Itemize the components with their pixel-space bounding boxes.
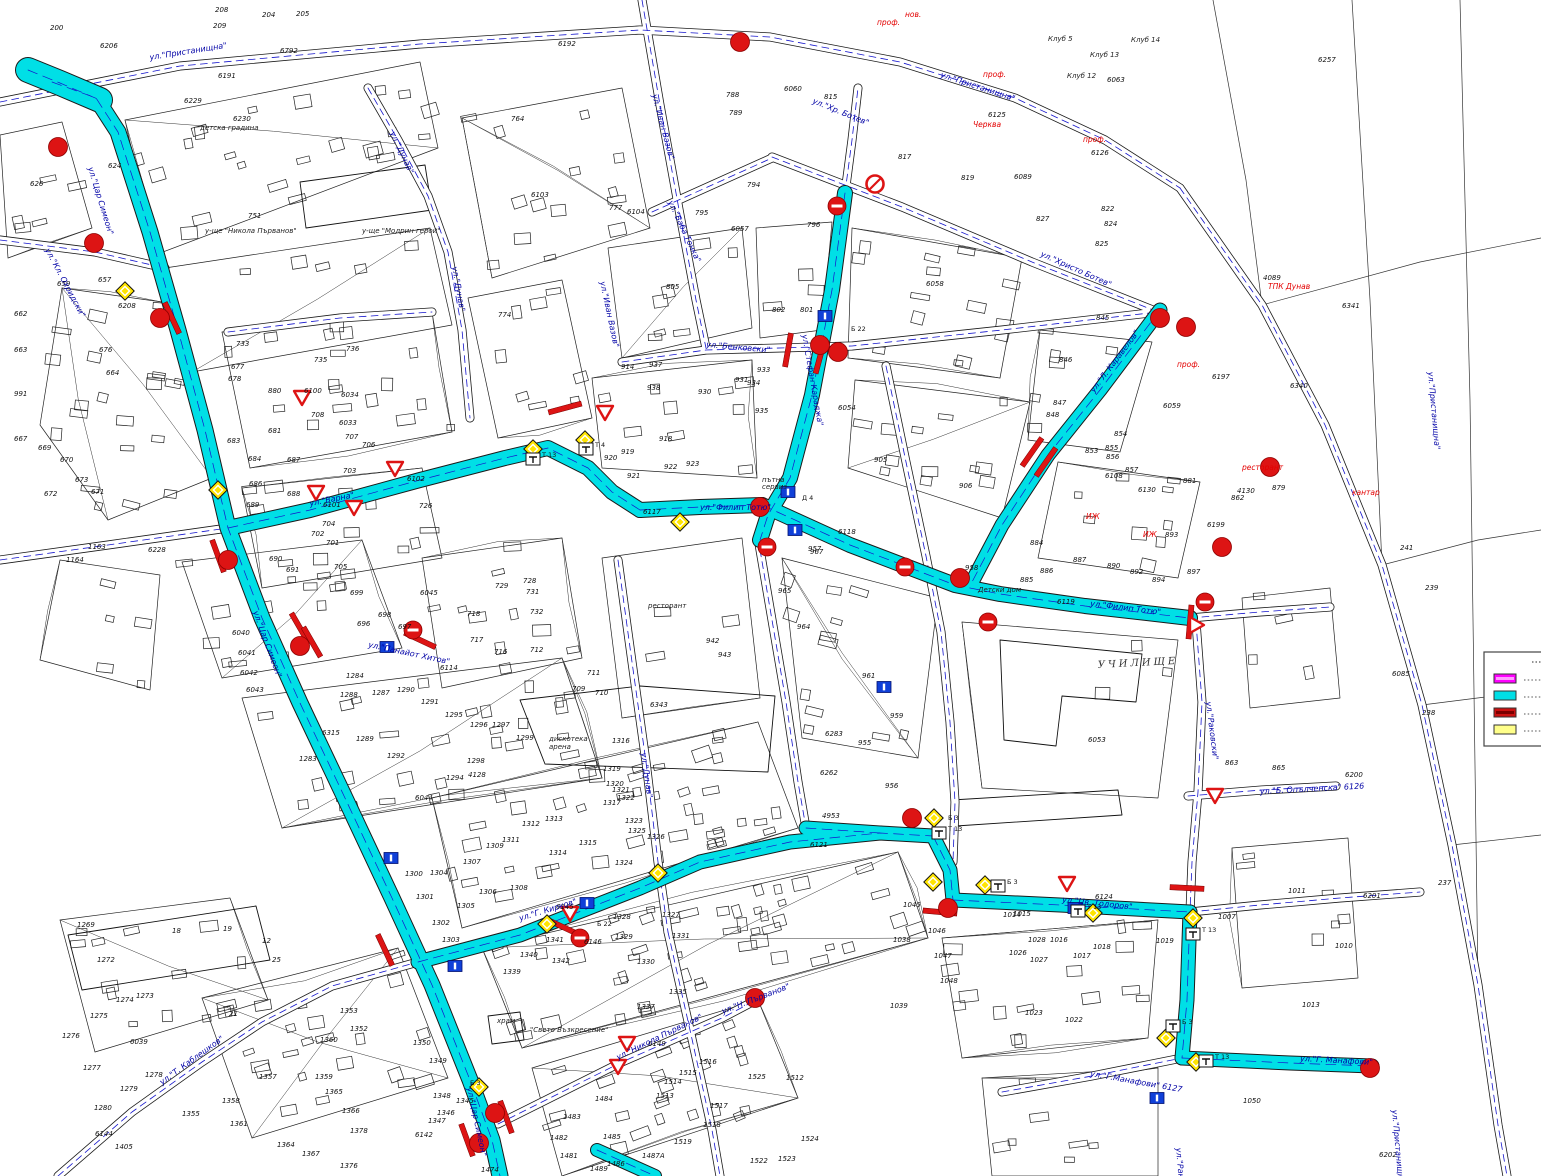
parcel-number: 1328 xyxy=(613,913,631,921)
parcel-block-outline xyxy=(482,852,928,1048)
parcel-number: 1324 xyxy=(615,859,633,867)
parcel-number: 1302 xyxy=(432,919,450,927)
parcel-number: 1358 xyxy=(222,1097,240,1105)
parcel-number: 1525 xyxy=(748,1073,766,1081)
parcel-block-outline xyxy=(40,560,160,690)
parcel-number: 691 xyxy=(286,566,299,574)
building xyxy=(375,85,386,95)
parcel-number: 1292 xyxy=(387,752,405,760)
parcel-block-outline xyxy=(848,380,1030,518)
parcel-number: 6200 xyxy=(1345,771,1363,779)
building xyxy=(304,583,318,591)
parcel-number: 6039 xyxy=(130,1038,148,1046)
building xyxy=(525,681,534,693)
building xyxy=(105,615,114,622)
building xyxy=(181,226,198,240)
building xyxy=(993,1006,1006,1019)
building xyxy=(237,161,246,169)
parcel-number: 732 xyxy=(530,608,544,616)
parcel-number: 6103 xyxy=(531,191,549,199)
building xyxy=(418,678,429,689)
parcel-number: 6340 xyxy=(1290,382,1308,390)
no-entry-bar xyxy=(900,566,911,569)
sign-code-label: Б 3 xyxy=(470,1079,481,1087)
building xyxy=(116,416,133,427)
parcel-number: 853 xyxy=(1085,447,1098,455)
parcel-number: 6058 xyxy=(926,280,944,288)
field-boundary xyxy=(1262,238,1541,305)
street-name-label: ул."Панайот Хитов" xyxy=(367,640,451,666)
poi-label-red: ИЖ xyxy=(1143,530,1158,539)
parcel-number: 6343 xyxy=(650,701,668,709)
building xyxy=(480,705,492,718)
building xyxy=(315,262,330,272)
street-name-label: ул."Т. Каблешков" xyxy=(157,1034,225,1087)
parcel-number: 684 xyxy=(248,455,261,463)
building xyxy=(926,267,940,276)
parcel-number: 6044 xyxy=(415,794,433,802)
sign-code-label: Т 13 xyxy=(541,451,556,459)
poi-label-red: проф. xyxy=(877,18,900,27)
parcel-number: 716 xyxy=(494,648,508,656)
building xyxy=(237,957,245,969)
building xyxy=(679,907,699,918)
building xyxy=(317,601,326,611)
building xyxy=(993,1141,1011,1153)
sign-code-label: Б 3 xyxy=(1007,878,1018,886)
parcel-number: 1518 xyxy=(703,1121,721,1129)
building xyxy=(654,329,666,337)
parcel-number: 1300 xyxy=(405,870,423,878)
building xyxy=(100,579,116,589)
parcel-number: 6063 xyxy=(1107,76,1125,84)
parcel-number: 19 xyxy=(223,925,232,933)
building xyxy=(134,617,152,629)
building xyxy=(164,489,177,498)
building xyxy=(763,827,776,836)
highlight-route-ul-l-karavelov xyxy=(972,310,1160,582)
parcel-number: 789 xyxy=(729,109,743,117)
parcel-number: 1313 xyxy=(545,815,563,823)
parcel-number: 802 xyxy=(772,306,786,314)
parcel-number: 663 xyxy=(14,346,27,354)
parcel-number: 6201 xyxy=(1363,892,1381,900)
building xyxy=(516,391,529,402)
building xyxy=(717,906,730,916)
poi-label-red: Черква xyxy=(973,120,1001,129)
parcel-number: 1287 xyxy=(372,689,390,697)
building xyxy=(751,927,761,935)
parcel-number: 671 xyxy=(91,488,104,496)
parcel-number: 1353 xyxy=(340,1007,358,1015)
parcel-number: 885 xyxy=(1020,576,1034,584)
building xyxy=(842,942,855,954)
parcel-number: 857 xyxy=(1125,466,1139,474)
poi-label: дискотека xyxy=(548,735,588,743)
parcel-number: 1517 xyxy=(710,1102,728,1110)
no-entry-bar xyxy=(832,205,843,208)
building xyxy=(280,1104,297,1116)
no-entry-bar xyxy=(983,621,994,624)
building xyxy=(890,912,908,929)
parcel-number: 6057 xyxy=(731,225,749,233)
parcel-number: 678 xyxy=(228,375,242,383)
poi-label: у-ще "Модрин герой" xyxy=(361,227,440,235)
building xyxy=(91,937,105,946)
parcel-number: 698 xyxy=(378,611,392,619)
traffic-sign-icon xyxy=(219,551,238,570)
poi-label-red: ТПК Дунав xyxy=(1268,282,1310,291)
building xyxy=(504,866,514,873)
parcel-number: 6229 xyxy=(184,97,202,105)
building xyxy=(1064,1157,1074,1162)
parcel-number: 1297 xyxy=(492,721,510,729)
building xyxy=(792,876,811,892)
building xyxy=(240,269,251,275)
info-sign-glyph xyxy=(883,684,885,691)
building xyxy=(388,1067,404,1083)
parcel-number: 1039 xyxy=(890,1002,908,1010)
building xyxy=(762,922,782,935)
parcel-number: 6341 xyxy=(1342,302,1360,310)
poi-label: ресторант xyxy=(647,602,687,610)
parcel-number: 6040 xyxy=(232,629,250,637)
parcel-number: 933 xyxy=(757,366,770,374)
parcel-number: 822 xyxy=(1101,205,1115,213)
parcel-number: 886 xyxy=(1040,567,1054,575)
building xyxy=(465,708,478,717)
building xyxy=(323,328,334,340)
parcel-number: 892 xyxy=(1130,568,1144,576)
parcel-number: 906 xyxy=(959,482,973,490)
building xyxy=(344,528,360,538)
building xyxy=(737,917,748,931)
building xyxy=(702,786,719,796)
building xyxy=(254,999,271,1011)
parcel-number: 1301 xyxy=(416,893,434,901)
parcel-number: 1311 xyxy=(502,836,520,844)
building xyxy=(291,255,308,269)
building xyxy=(528,401,546,410)
parcel-number: 711 xyxy=(587,669,600,677)
building xyxy=(1131,640,1142,651)
parcel-number: 731 xyxy=(526,588,539,596)
parcel-number: 657 xyxy=(98,276,112,284)
parcel-number: 696 xyxy=(357,620,371,628)
parcel-number: 1349 xyxy=(429,1057,447,1065)
parcel-block-outline xyxy=(468,280,592,438)
parcel-number: 6192 xyxy=(558,40,576,48)
poi-label: детска градина xyxy=(199,124,258,132)
parcel-number: 1321 xyxy=(612,786,630,794)
legend-swatch-route-type-cyan xyxy=(1494,691,1516,700)
building xyxy=(258,711,274,720)
poi-label: Клуб 14 xyxy=(1131,36,1160,44)
parcel-number: 1022 xyxy=(1065,1016,1083,1024)
parcel-number: 845 xyxy=(1096,314,1110,322)
parcel-number: 6100 xyxy=(304,387,322,395)
parcel-number: 827 xyxy=(1036,215,1050,223)
parcel-number: 1027 xyxy=(1030,956,1048,964)
parcel-number: 1352 xyxy=(350,1025,368,1033)
building xyxy=(615,1014,626,1025)
building xyxy=(381,378,392,391)
parcel-number: 1513 xyxy=(656,1092,674,1100)
parcel-number: 6034 xyxy=(341,391,359,399)
field-boundary xyxy=(1452,835,1541,845)
poi-label-red: проф. xyxy=(1177,360,1200,369)
parcel-number: 1516 xyxy=(699,1058,717,1066)
parcel-number: 1329 xyxy=(615,933,633,941)
parcel-number: 6144 xyxy=(95,1130,113,1138)
parcel-number: 6042 xyxy=(240,669,258,677)
parcel-number: 699 xyxy=(350,589,364,597)
traffic-sign-icon xyxy=(151,309,170,328)
parcel-number: 795 xyxy=(695,209,709,217)
parcel-number: 718 xyxy=(467,610,481,618)
legend-swatch-route-type-yellow xyxy=(1494,725,1516,734)
parcel-number: 689 xyxy=(246,501,260,509)
parcel-number: 1361 xyxy=(230,1120,248,1128)
parcel-number: 6126 xyxy=(1091,149,1109,157)
parcel-number: 1339 xyxy=(503,968,521,976)
parcel-number: 1347 xyxy=(428,1117,446,1125)
building xyxy=(504,542,522,552)
parcel-number: 701 xyxy=(326,539,339,547)
traffic-sign-icon xyxy=(731,33,750,52)
building xyxy=(398,1078,415,1088)
parcel-number: 961 xyxy=(862,672,875,680)
poi-label: "Свето Възкресение" xyxy=(530,1026,608,1034)
building xyxy=(328,379,339,389)
building xyxy=(419,134,431,140)
building xyxy=(1015,1035,1027,1048)
parcel-number: 6041 xyxy=(238,649,256,657)
parcel-number: 710 xyxy=(595,689,609,697)
parcel-number: 1486 xyxy=(607,1160,625,1168)
road-surface xyxy=(642,0,706,348)
building xyxy=(1133,922,1152,930)
building xyxy=(313,553,328,565)
parcel-number: 1487А xyxy=(642,1152,665,1160)
parcel-number: 1514 xyxy=(664,1078,682,1086)
building xyxy=(830,618,842,626)
poi-label-red: ИЖ xyxy=(1086,512,1101,521)
parcel-number: 677 xyxy=(231,363,245,371)
building xyxy=(367,146,379,160)
building xyxy=(912,426,924,434)
building xyxy=(461,877,478,887)
parcel-number: 6054 xyxy=(838,404,856,412)
traffic-sign-icon xyxy=(1177,318,1196,337)
parcel-number: 624 xyxy=(108,162,121,170)
building xyxy=(1236,862,1255,870)
parcel-number: 1045 xyxy=(903,901,921,909)
field-boundary xyxy=(1213,0,1262,305)
building xyxy=(336,1056,353,1070)
parcel-number: 686 xyxy=(249,480,263,488)
parcel-number: 1015 xyxy=(1013,910,1031,918)
parcel-number: 1164 xyxy=(66,556,84,564)
parcel-number: 788 xyxy=(726,91,740,99)
parcel-number: 1018 xyxy=(1093,943,1111,951)
parcel-block-outline xyxy=(1232,838,1358,988)
parcel-number: 934 xyxy=(747,379,760,387)
building xyxy=(910,292,930,300)
parcel-number: 1522 xyxy=(750,1157,768,1165)
parcel-number: 922 xyxy=(664,463,678,471)
parcel-number: 905 xyxy=(874,456,888,464)
poi-label: храм xyxy=(496,1017,516,1025)
parcel-number: 1299 xyxy=(516,734,534,742)
building xyxy=(630,1126,651,1141)
street-name-label: ул."Пристанищна" xyxy=(1390,1108,1406,1176)
parcel-number: 1284 xyxy=(346,672,364,680)
parcel-number: 1342 xyxy=(552,957,570,965)
sign-code-label: Т 4 xyxy=(594,441,605,449)
building xyxy=(1163,520,1172,530)
parcel-number: 1275 xyxy=(90,1012,108,1020)
parcel-number: 1350 xyxy=(413,1039,431,1047)
parcel-number: 6191 xyxy=(218,72,236,80)
parcel-number: 1288 xyxy=(340,691,358,699)
parcel-block-outline xyxy=(962,622,1178,798)
building xyxy=(68,180,87,191)
info-sign-glyph xyxy=(787,489,789,496)
no-entry-bar xyxy=(1200,601,1211,604)
parcel-number: 1367 xyxy=(302,1150,320,1158)
parcel-number: 4128 xyxy=(468,771,486,779)
parcel-number: 12 xyxy=(262,937,271,945)
parcel-number: 1283 xyxy=(299,755,317,763)
parcel-number: 965 xyxy=(778,587,792,595)
parcel-block-outline xyxy=(608,228,752,358)
building xyxy=(826,586,842,596)
building xyxy=(312,778,324,792)
parcel-number: 6045 xyxy=(420,589,438,597)
poi-label: Детски дом xyxy=(977,586,1022,594)
building xyxy=(308,1015,325,1029)
building xyxy=(799,269,814,281)
building xyxy=(192,212,212,226)
building xyxy=(45,354,61,366)
parcel-number: 6089 xyxy=(1014,173,1032,181)
building xyxy=(551,204,567,216)
building xyxy=(849,586,869,598)
parcel-number: 848 xyxy=(1046,411,1060,419)
building xyxy=(727,1036,738,1048)
parcel-number: 705 xyxy=(334,563,348,571)
parcel-number: 887 xyxy=(1073,556,1087,564)
parcel-number: 1489 xyxy=(590,1165,608,1173)
building xyxy=(859,241,871,255)
parcel-number: 6197 xyxy=(1212,373,1230,381)
building xyxy=(737,818,746,826)
parcel-number: 6117 xyxy=(643,508,661,516)
parcel-number: 200 xyxy=(50,24,64,32)
building xyxy=(106,987,116,1000)
parcel-number: 21 xyxy=(229,1010,238,1018)
parcel-number: 6228 xyxy=(148,546,166,554)
parcel-number: 726 xyxy=(419,502,433,510)
parcel-number: 1519 xyxy=(674,1138,692,1146)
parcel-number: 1357 xyxy=(259,1073,277,1081)
building xyxy=(363,141,384,158)
building xyxy=(783,607,800,622)
parcel-number: 938 xyxy=(647,384,661,392)
parcel-number: 1298 xyxy=(467,757,485,765)
building xyxy=(624,426,642,437)
parcel-number: 1272 xyxy=(97,956,115,964)
parcel-number: 690 xyxy=(269,555,283,563)
parcel-number: 1017 xyxy=(1073,952,1091,960)
parcel-number: 817 xyxy=(898,153,912,161)
building xyxy=(800,689,811,701)
parcel-number: 1291 xyxy=(421,698,439,706)
parcel-number: 6142 xyxy=(415,1131,433,1139)
building xyxy=(598,393,611,403)
parcel-number: 237 xyxy=(1438,879,1452,887)
parcel-number: 1312 xyxy=(522,820,540,828)
building xyxy=(967,300,987,313)
building xyxy=(511,305,522,319)
building xyxy=(553,797,566,810)
building xyxy=(852,252,866,264)
parcel-number: 937 xyxy=(649,361,663,369)
parcel-number: 1048 xyxy=(940,977,958,985)
parcel-number: 1331 xyxy=(672,932,690,940)
parcel-number: 1277 xyxy=(83,1064,101,1072)
parcel-number: 921 xyxy=(627,472,640,480)
parcel-number: 1326 xyxy=(647,833,665,841)
parcel-number: 735 xyxy=(314,356,328,364)
parcel-number: 6199 xyxy=(1207,521,1225,529)
parcel-number: 208 xyxy=(215,6,229,14)
building xyxy=(737,1053,748,1066)
stop-bar-icon xyxy=(548,401,582,415)
info-sign-glyph xyxy=(1156,1095,1158,1102)
parcel-number: 796 xyxy=(807,221,821,229)
building xyxy=(122,499,140,510)
parcel-number: 1011 xyxy=(1288,887,1306,895)
street-name-label: ул."Раковски" xyxy=(1204,700,1220,760)
road-guide-line xyxy=(58,962,418,1176)
building xyxy=(668,830,688,843)
building xyxy=(639,912,654,925)
building xyxy=(251,1060,270,1073)
building xyxy=(405,241,419,251)
building xyxy=(398,546,409,553)
parcel-number: 854 xyxy=(1114,430,1127,438)
parcel-number: 774 xyxy=(498,311,511,319)
parcel-number: 967 xyxy=(810,548,824,556)
parcel-number: 6130 xyxy=(1138,486,1156,494)
parcel-number: 702 xyxy=(311,530,325,538)
building xyxy=(1136,995,1149,1002)
building xyxy=(694,978,704,986)
parcel-number: 1314 xyxy=(549,849,567,857)
parcel-number: 1026 xyxy=(1009,949,1027,957)
parcel-number: 6125 xyxy=(988,111,1006,119)
parcel-number: 884 xyxy=(1030,539,1043,547)
building xyxy=(1089,1142,1099,1148)
parcel-number: 205 xyxy=(296,10,310,18)
building xyxy=(811,955,829,967)
traffic-sign-icon xyxy=(939,899,958,918)
parcel-number: 6102 xyxy=(407,475,425,483)
road-casing xyxy=(1180,188,1507,1176)
building xyxy=(12,215,24,229)
